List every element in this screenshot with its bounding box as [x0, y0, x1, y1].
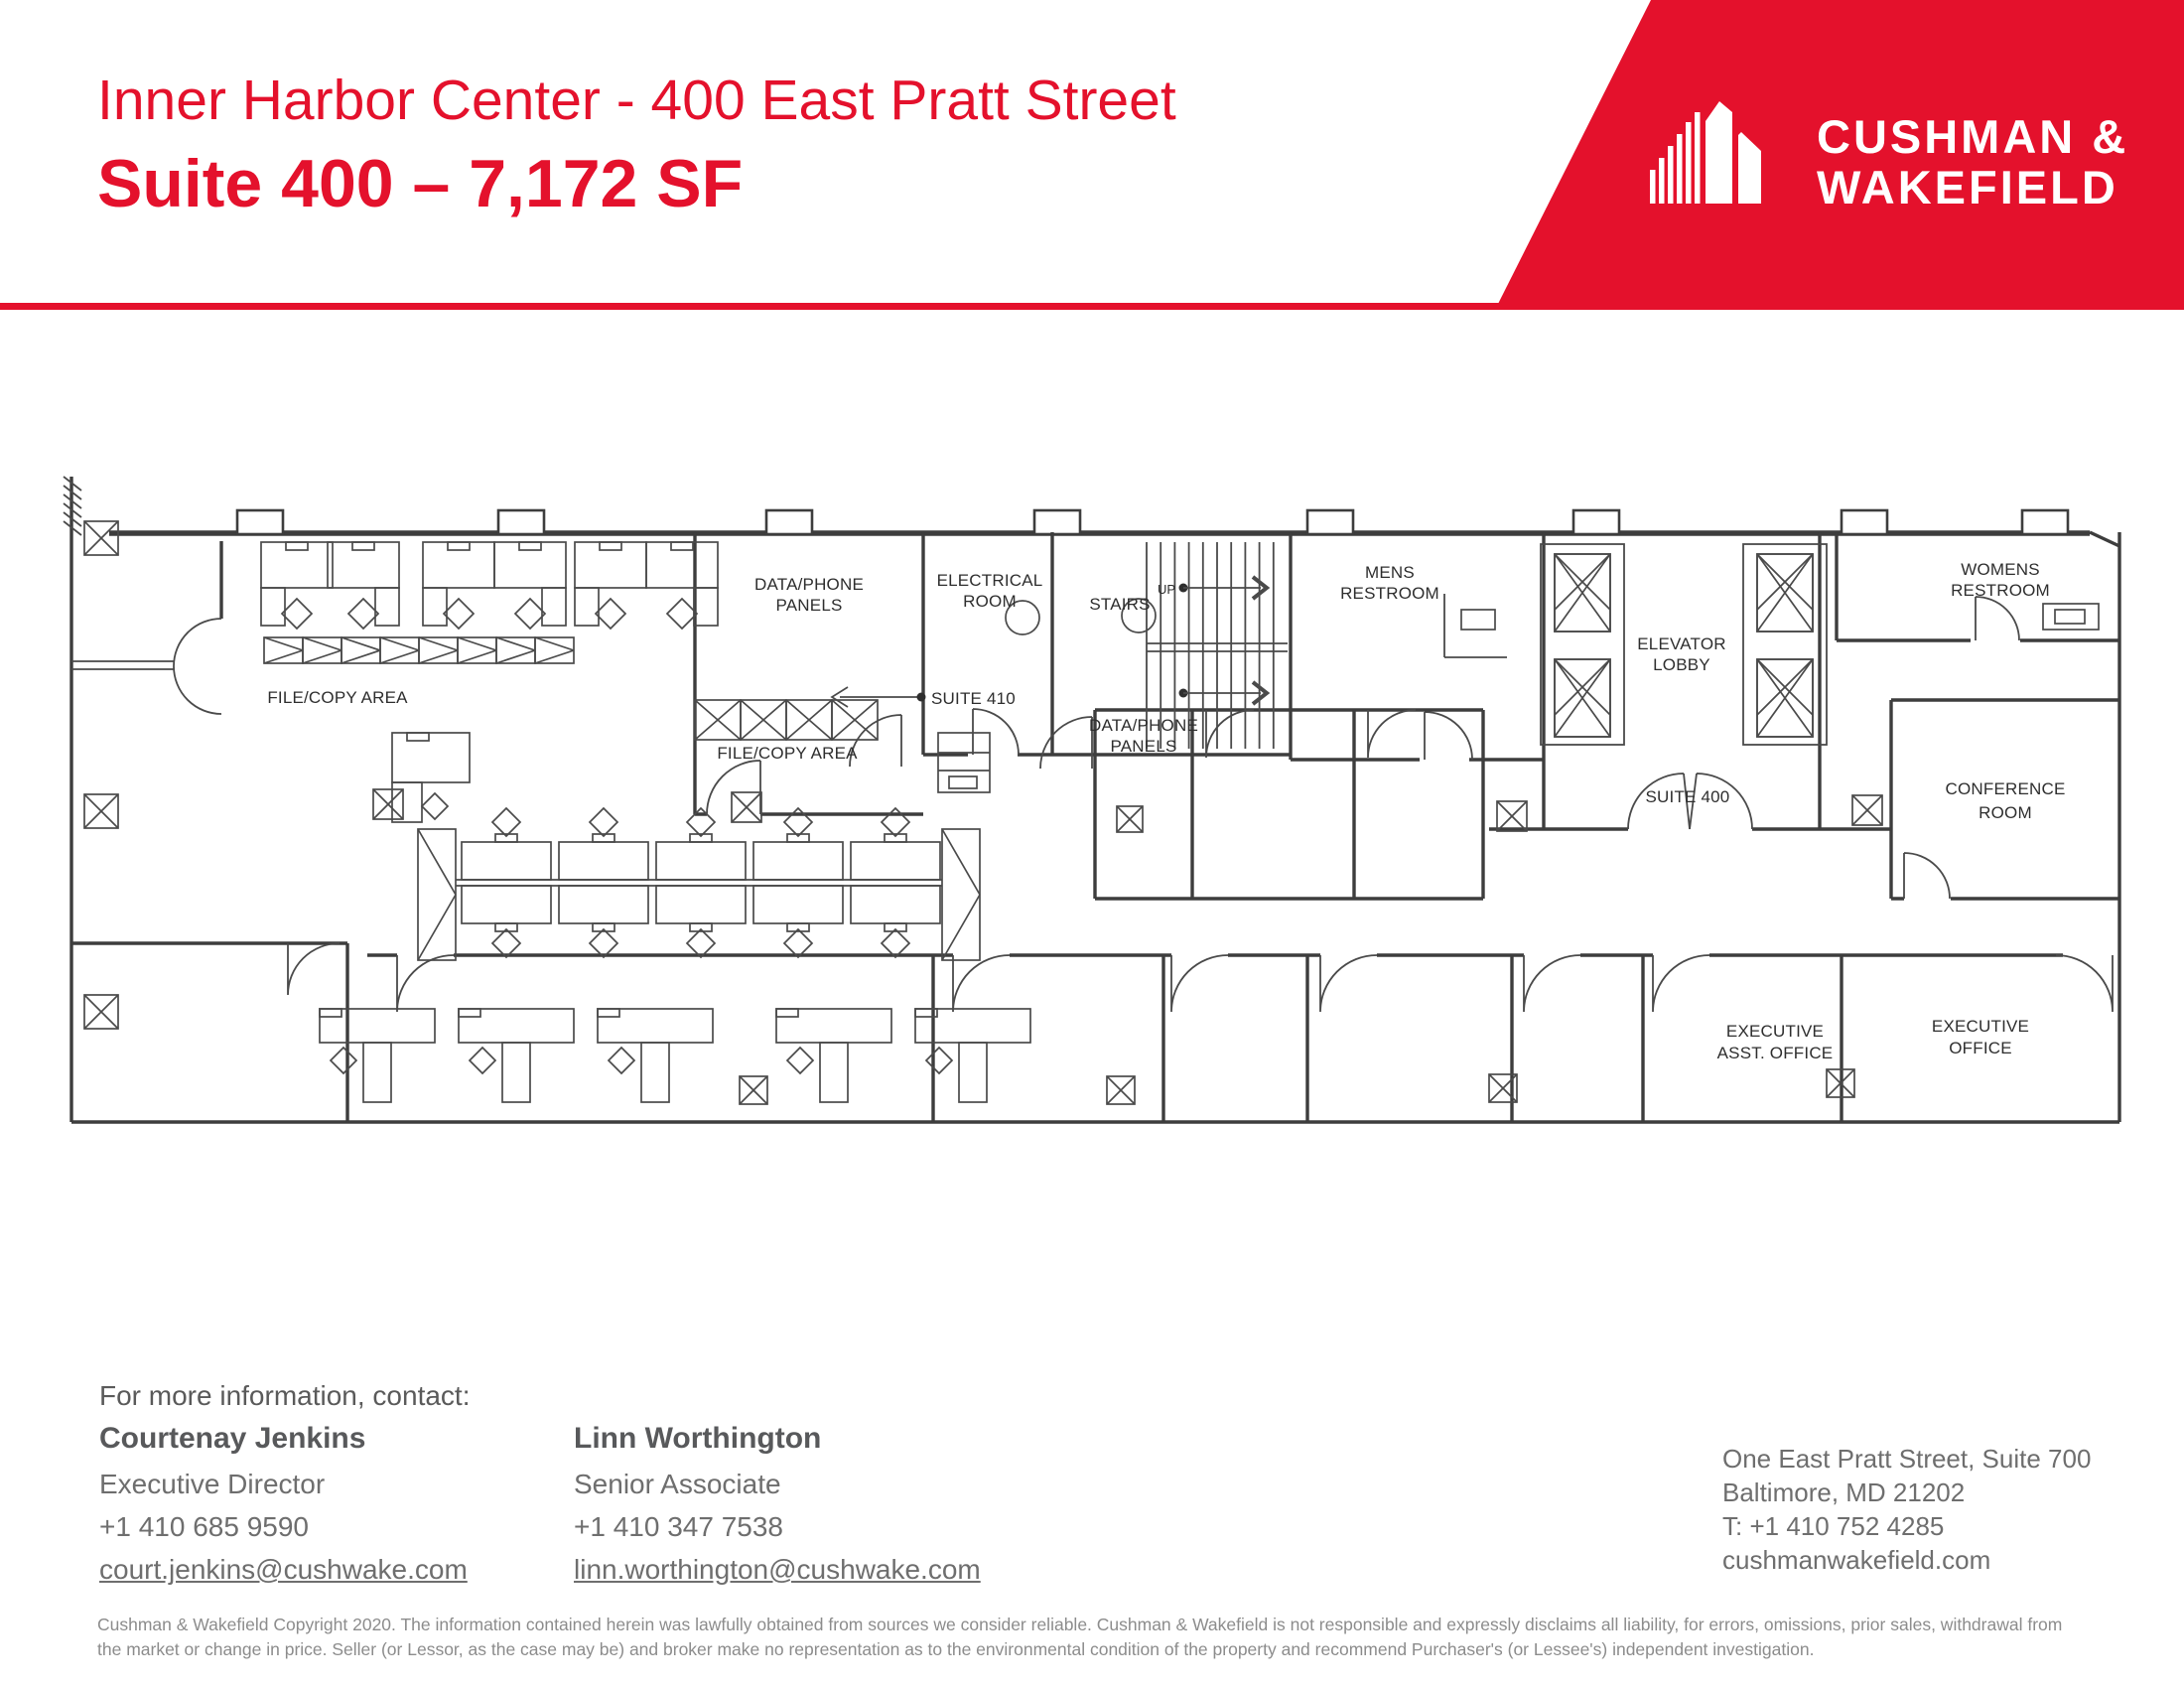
label-data-phone-2b: PANELS	[1110, 737, 1176, 756]
contact-card-1: Courtenay Jenkins Executive Director +1 …	[99, 1422, 556, 1587]
contact-1-name: Courtenay Jenkins	[99, 1422, 556, 1456]
label-data-phone-2a: DATA/PHONE	[1089, 716, 1198, 735]
office-website[interactable]: cushmanwakefield.com	[1722, 1543, 2091, 1577]
contact-1-phone: +1 410 685 9590	[99, 1510, 556, 1544]
label-electrical-a: ELECTRICAL	[937, 571, 1043, 590]
label-file-copy-1: FILE/COPY AREA	[267, 688, 408, 707]
brand-line1: CUSHMAN &	[1817, 111, 2128, 162]
label-exec-office-a: EXECUTIVE	[1932, 1017, 2029, 1036]
label-suite-410: SUITE 410	[931, 689, 1016, 708]
label-mens-b: RESTROOM	[1340, 584, 1439, 603]
flyer-page: Inner Harbor Center - 400 East Pratt Str…	[0, 0, 2184, 1688]
office-address2: Baltimore, MD 21202	[1722, 1476, 2091, 1509]
label-womens-a: WOMENS	[1961, 560, 2040, 579]
label-stairs: STAIRS	[1089, 595, 1150, 614]
label-suite-400: SUITE 400	[1646, 787, 1730, 806]
label-conference-a: CONFERENCE	[1945, 779, 2065, 798]
furniture-layer	[64, 477, 2113, 1104]
label-data-phone-1b: PANELS	[775, 596, 842, 615]
label-conference-b: ROOM	[1979, 803, 2032, 822]
brand-wordmark: CUSHMAN & WAKEFIELD	[1817, 111, 2128, 212]
contact-2-name: Linn Worthington	[574, 1422, 1030, 1456]
contact-heading: For more information, contact:	[99, 1380, 470, 1412]
office-address-block: One East Pratt Street, Suite 700 Baltimo…	[1722, 1442, 2091, 1577]
office-address1: One East Pratt Street, Suite 700	[1722, 1442, 2091, 1476]
brand-line2: WAKEFIELD	[1817, 162, 2128, 212]
label-mens-a: MENS	[1365, 563, 1415, 582]
contact-1-title: Executive Director	[99, 1468, 556, 1501]
label-data-phone-1a: DATA/PHONE	[754, 575, 864, 594]
label-electrical-b: ROOM	[963, 592, 1017, 611]
label-exec-asst-a: EXECUTIVE	[1726, 1022, 1824, 1041]
contact-2-title: Senior Associate	[574, 1468, 1030, 1501]
header-rule	[0, 303, 2184, 310]
label-exec-asst-b: ASST. OFFICE	[1717, 1044, 1834, 1062]
label-file-copy-2: FILE/COPY AREA	[717, 744, 858, 763]
label-womens-b: RESTROOM	[1951, 581, 2050, 600]
contact-card-2: Linn Worthington Senior Associate +1 410…	[574, 1422, 1030, 1587]
contact-1-email[interactable]: court.jenkins@cushwake.com	[99, 1553, 556, 1587]
label-stairs-up: UP	[1158, 582, 1175, 597]
legal-disclaimer: Cushman & Wakefield Copyright 2020. The …	[97, 1613, 2078, 1662]
contact-2-phone: +1 410 347 7538	[574, 1510, 1030, 1544]
label-elevator-b: LOBBY	[1653, 655, 1710, 674]
floor-plan: FILE/COPY AREA FILE/COPY AREA DATA/PHONE…	[40, 328, 2134, 1152]
contact-2-email[interactable]: linn.worthington@cushwake.com	[574, 1553, 1030, 1587]
office-phone: T: +1 410 752 4285	[1722, 1509, 2091, 1543]
label-exec-office-b: OFFICE	[1949, 1039, 2012, 1057]
label-elevator-a: ELEVATOR	[1637, 634, 1725, 653]
